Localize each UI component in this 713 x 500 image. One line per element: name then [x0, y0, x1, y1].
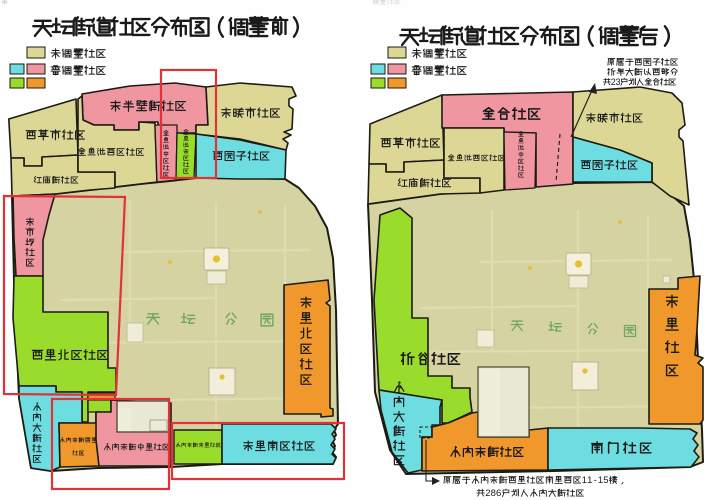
svg-text:1: 1 — [587, 475, 592, 486]
svg-text:3: 3 — [615, 77, 620, 87]
svg-text:5: 5 — [603, 475, 608, 486]
svg-text:-: - — [594, 475, 597, 486]
svg-text:6: 6 — [496, 488, 501, 499]
